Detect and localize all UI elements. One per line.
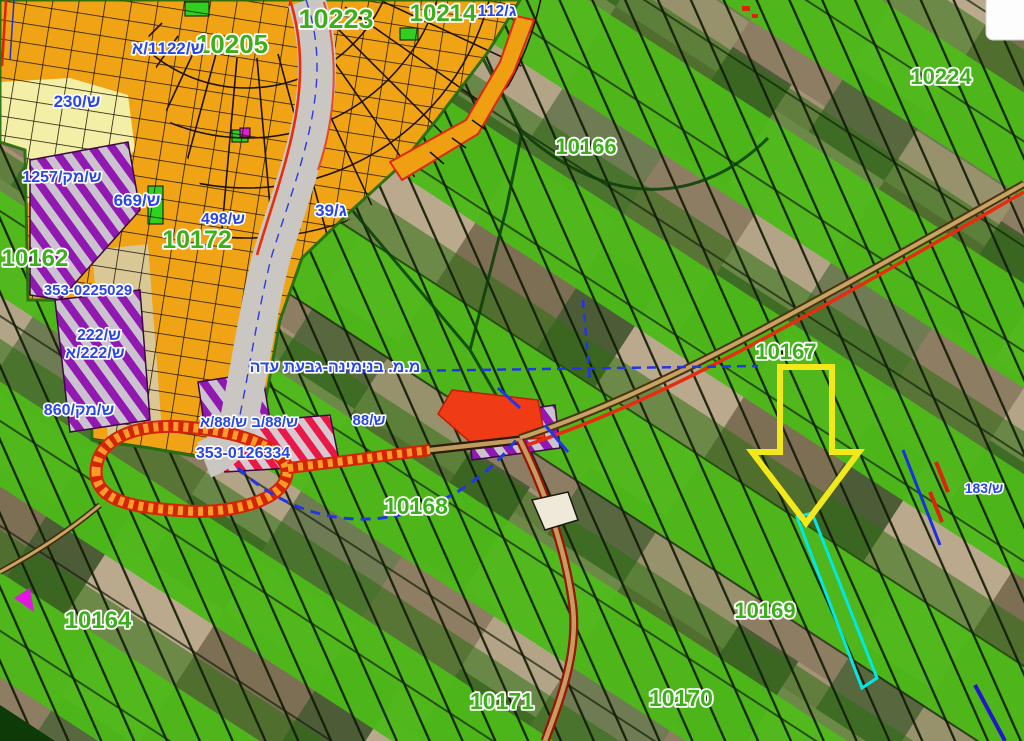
block-label-10171: 10171 xyxy=(470,688,534,714)
deal-label-0225029: 353-0225029 xyxy=(44,282,132,299)
cutoff-panel xyxy=(986,0,1024,40)
plan-label-112g: ג/112 xyxy=(478,3,517,20)
plan-label-498: ש/498 xyxy=(201,211,245,228)
plan-label-222: ש/222 xyxy=(77,327,121,344)
plan-label-88b-88a: ש/88/ב ש/88/א xyxy=(200,414,298,431)
plan-label-39g: ג/39 xyxy=(315,201,347,220)
plan-label-222a: ש/222/א xyxy=(65,345,125,362)
block-label-10205: 10205 xyxy=(196,29,268,59)
block-label-10169: 10169 xyxy=(734,598,795,623)
block-label-10166: 10166 xyxy=(555,134,616,159)
block-label-10214: 10214 xyxy=(410,0,477,27)
map-viewport[interactable]: 10223 10205 10214 10224 10166 10172 1016… xyxy=(0,0,1024,741)
block-label-10170: 10170 xyxy=(649,685,713,711)
block-label-10162: 10162 xyxy=(2,245,69,272)
plan-label-1122a: ש/1122/א xyxy=(132,39,205,58)
municipality-label: מ.מ. בנימינה-גבעת עדה xyxy=(250,359,421,376)
plan-label-1257: ש/מק/1257 xyxy=(22,169,101,186)
plan-label-860: ש/מק/860 xyxy=(44,402,115,419)
block-label-10167: 10167 xyxy=(755,339,816,364)
block-label-10164: 10164 xyxy=(65,607,132,634)
block-label-10172: 10172 xyxy=(162,226,232,254)
map-canvas[interactable]: 10223 10205 10214 10224 10166 10172 1016… xyxy=(0,0,1024,741)
plan-label-230: ש/230 xyxy=(54,92,101,111)
block-label-10168: 10168 xyxy=(384,493,448,519)
plan-label-88: ש/88 xyxy=(353,412,386,429)
plan-label-183: ש/183 xyxy=(965,480,1004,496)
block-label-10224: 10224 xyxy=(910,64,972,89)
deal-label-0126334: 353-0126334 xyxy=(196,445,290,462)
block-label-10223: 10223 xyxy=(298,4,373,34)
plan-label-669: ש/669 xyxy=(114,191,161,210)
